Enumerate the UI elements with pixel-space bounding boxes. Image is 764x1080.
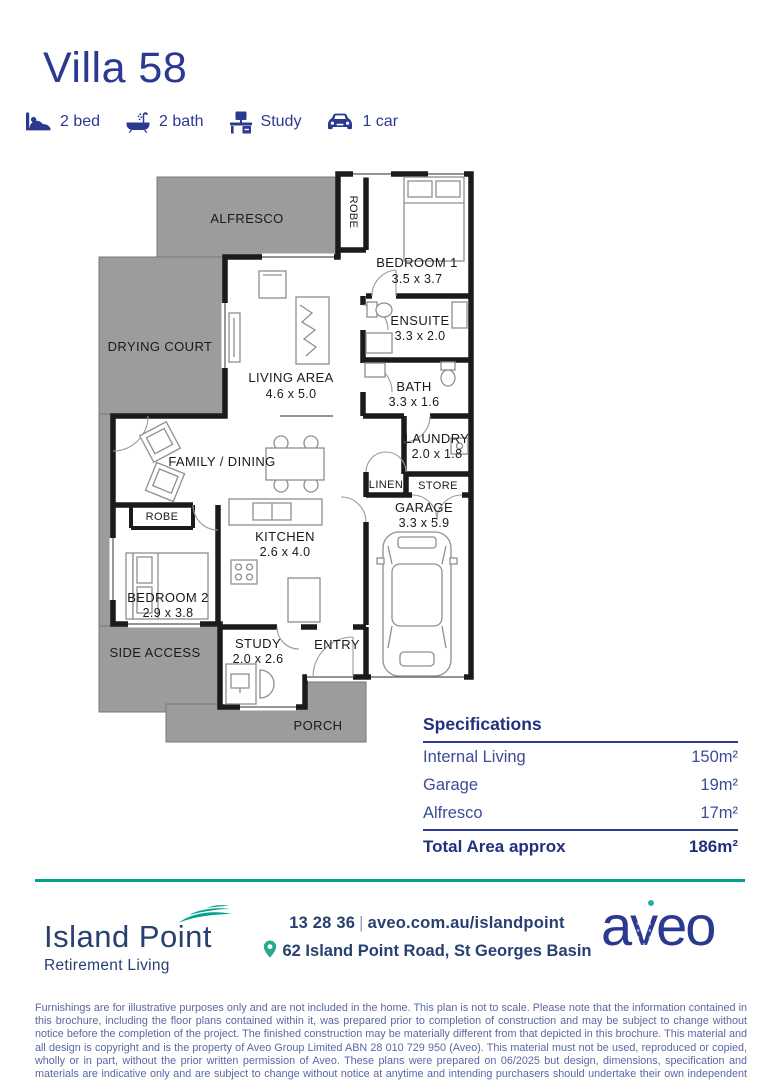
room-label-laundry: LAUNDRY: [405, 431, 470, 446]
bed-icon: [25, 111, 52, 133]
room-label-ensuite: ENSUITE: [390, 313, 449, 328]
aveo-logo: aveo: [601, 898, 714, 954]
brand-tagline: Retirement Living: [44, 957, 284, 975]
website-link[interactable]: aveo.com.au/islandpoint: [368, 914, 565, 932]
room-label-robe1: ROBE: [347, 196, 359, 229]
room-dims-ensuite: 3.3 x 2.0: [395, 329, 446, 343]
address: 62 Island Point Road, St Georges Basin: [283, 942, 592, 961]
feature-study: Study: [229, 111, 302, 134]
contact-line1: 13 28 36|aveo.com.au/islandpoint: [262, 914, 592, 933]
floor-plan: ALFRESCO ROBE BEDROOM 1 3.5 x 3.7 DRYING…: [92, 165, 478, 747]
room-label-bedroom2: BEDROOM 2: [127, 590, 209, 605]
feature-bath: 2 bath: [125, 110, 203, 134]
location-pin-icon: [263, 940, 277, 963]
feature-bed-label: 2 bed: [60, 113, 100, 131]
disclaimer-text: Furnishings are for illustrative purpose…: [35, 1002, 747, 1080]
aveo-logo-a1: a: [601, 894, 630, 957]
spec-row-total: Total Area approx 186m²: [423, 829, 738, 857]
contact-line2: 62 Island Point Road, St Georges Basin: [262, 940, 592, 963]
spec-row-garage: Garage 19m²: [423, 771, 738, 799]
room-label-kitchen: KITCHEN: [255, 529, 315, 544]
room-label-family: FAMILY / DINING: [168, 454, 275, 469]
contact-block: 13 28 36|aveo.com.au/islandpoint 62 Isla…: [262, 914, 592, 963]
brand-name: Island Point: [44, 919, 284, 955]
phone-number: 13 28 36: [289, 914, 355, 932]
side-access-strip: [99, 414, 111, 628]
teal-divider: [35, 879, 745, 882]
spec-total-value: 186m²: [689, 837, 738, 857]
room-label-robe2: ROBE: [146, 511, 179, 523]
feature-bed: 2 bed: [25, 111, 100, 133]
spec-total-label: Total Area approx: [423, 837, 566, 857]
side-access-area: [99, 626, 220, 712]
spec-value: 19m²: [700, 776, 738, 795]
spec-value: 150m²: [691, 748, 738, 767]
page-title: Villa 58: [43, 44, 187, 93]
specifications-table: Specifications Internal Living 150m² Gar…: [423, 714, 738, 857]
room-label-bedroom1: BEDROOM 1: [376, 255, 458, 270]
feature-car-label: 1 car: [362, 113, 398, 131]
island-point-logo: Island Point Retirement Living: [44, 903, 284, 975]
room-label-bath: BATH: [396, 379, 431, 394]
room-label-living: LIVING AREA: [248, 370, 333, 385]
contact-separator: |: [355, 914, 368, 932]
room-dims-study: 2.0 x 2.6: [233, 652, 284, 666]
room-label-alfresco: ALFRESCO: [210, 211, 283, 226]
room-label-store: STORE: [418, 480, 458, 492]
spec-row-internal-living: Internal Living 150m²: [423, 743, 738, 771]
room-dims-garage: 3.3 x 5.9: [399, 516, 450, 530]
room-label-drying-court: DRYING COURT: [108, 339, 213, 354]
feature-study-label: Study: [261, 113, 302, 131]
spec-row-alfresco: Alfresco 17m²: [423, 799, 738, 827]
room-dims-bedroom2: 2.9 x 3.8: [143, 606, 194, 620]
feature-row: 2 bed 2 bath: [25, 110, 410, 134]
room-label-porch: PORCH: [294, 718, 343, 733]
feature-car: 1 car: [326, 111, 398, 133]
bath-icon: [125, 110, 151, 134]
room-label-garage: GARAGE: [395, 500, 453, 515]
feature-bath-label: 2 bath: [159, 113, 203, 131]
room-dims-bedroom1: 3.5 x 3.7: [392, 272, 443, 286]
room-dims-bath: 3.3 x 1.6: [389, 395, 440, 409]
spec-value: 17m²: [700, 804, 738, 823]
spec-label: Alfresco: [423, 804, 483, 823]
wave-icon: [176, 905, 234, 930]
drying-court-area: [99, 257, 225, 416]
room-label-study: STUDY: [235, 636, 281, 651]
room-dims-laundry: 2.0 x 1.8: [412, 447, 463, 461]
aveo-logo-v: v: [630, 898, 656, 954]
room-dims-living: 4.6 x 5.0: [266, 387, 317, 401]
room-label-entry: ENTRY: [314, 637, 360, 652]
brochure-page: Villa 58 2 bed: [0, 0, 764, 1080]
room-label-side-access: SIDE ACCESS: [109, 645, 200, 660]
car-icon: [326, 111, 354, 133]
room-label-linen: LINEN: [369, 479, 403, 491]
aveo-logo-eo: eo: [656, 894, 714, 957]
spec-label: Internal Living: [423, 748, 526, 767]
study-icon: [229, 111, 253, 134]
specifications-heading: Specifications: [423, 714, 738, 743]
room-dims-kitchen: 2.6 x 4.0: [260, 545, 311, 559]
spec-label: Garage: [423, 776, 478, 795]
